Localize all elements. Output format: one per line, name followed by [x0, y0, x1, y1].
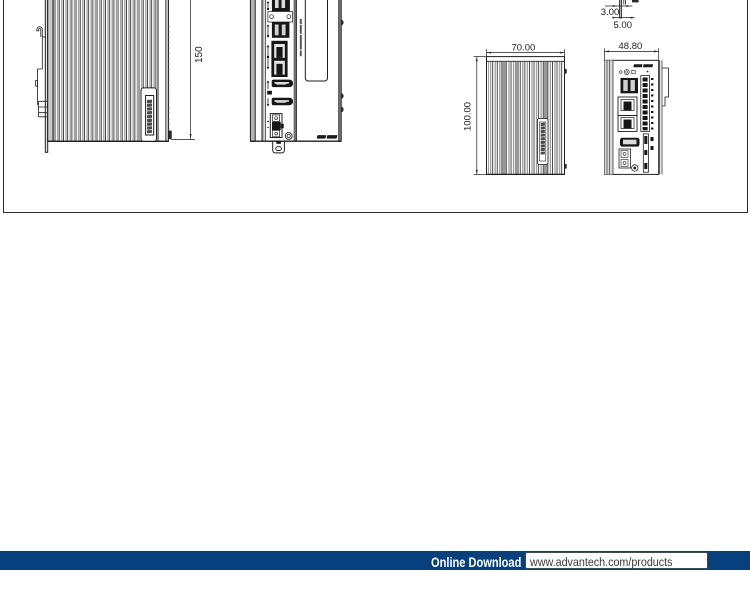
- svg-text:100.00: 100.00: [463, 102, 474, 131]
- svg-text:70.00: 70.00: [512, 42, 536, 53]
- svg-text:150: 150: [194, 46, 205, 63]
- svg-text:5.00: 5.00: [614, 20, 633, 31]
- svg-text:48.80: 48.80: [619, 41, 643, 52]
- svg-text:3.00: 3.00: [601, 7, 620, 18]
